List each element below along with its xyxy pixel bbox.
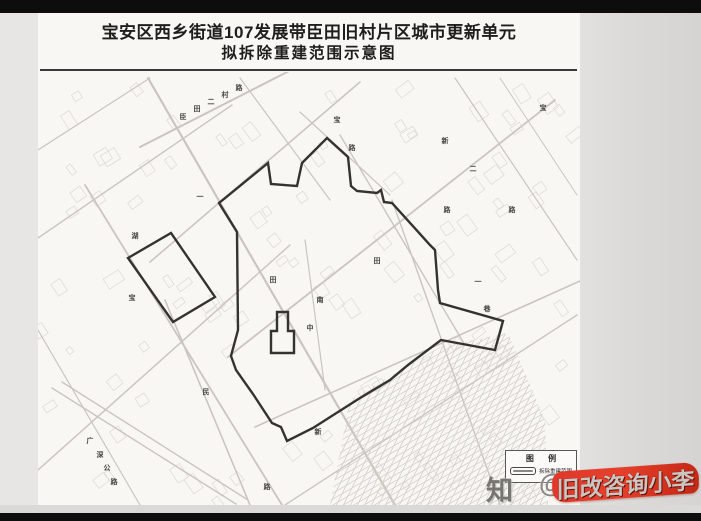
street-label: 村 bbox=[222, 90, 229, 99]
street-label: 公 bbox=[104, 464, 111, 472]
street-label: 田 bbox=[374, 257, 381, 265]
street-label: 巷 bbox=[483, 304, 492, 313]
street-label: 路 bbox=[349, 143, 357, 152]
street-label: 路 bbox=[444, 205, 452, 214]
street-label: 宝 bbox=[540, 103, 547, 112]
street-label: 路 bbox=[509, 205, 517, 214]
street-label: 路 bbox=[264, 482, 272, 491]
map-paper bbox=[38, 72, 580, 505]
title-divider bbox=[40, 69, 577, 71]
map-title: 宝安区西乡街道107发展带臣田旧村片区城市更新单元 拟拆除重建范围示意图 bbox=[38, 22, 580, 64]
street-label: 一 bbox=[197, 194, 204, 201]
street-label: 路 bbox=[236, 83, 244, 92]
map-title-line2: 拟拆除重建范围示意图 bbox=[38, 44, 580, 64]
street-label: 南 bbox=[317, 295, 324, 304]
street-label: 湖 bbox=[132, 231, 139, 240]
screenshot-root: 宝安区西乡街道107发展带臣田旧村片区城市更新单元 拟拆除重建范围示意图 臣田二… bbox=[0, 0, 701, 521]
photo-margin-left bbox=[0, 13, 38, 513]
street-label: 二 bbox=[470, 165, 477, 173]
street-label: 民 bbox=[203, 388, 210, 396]
street-label: 二 bbox=[208, 98, 215, 106]
street-label: 臣 bbox=[180, 113, 187, 121]
photo-margin-right bbox=[580, 13, 701, 513]
street-label: 新 bbox=[315, 427, 322, 436]
street-label: 中 bbox=[307, 323, 314, 332]
street-label: 宝 bbox=[334, 115, 341, 124]
letterbox-top-bar bbox=[0, 0, 701, 13]
street-label: 一 bbox=[475, 279, 482, 286]
street-label: 田 bbox=[194, 105, 201, 113]
map-title-line1: 宝安区西乡街道107发展带臣田旧村片区城市更新单元 bbox=[38, 22, 580, 44]
street-label: 田 bbox=[270, 276, 277, 284]
street-label: 深 bbox=[97, 450, 104, 459]
letterbox-bottom-bar bbox=[0, 513, 701, 521]
planning-map: 臣田二村路一宝路宝新二路路田一巷田南中湖宝民新路广深公路 bbox=[38, 72, 580, 505]
street-label: 路 bbox=[111, 477, 119, 486]
legend-title: 图 例 bbox=[506, 453, 576, 464]
street-label: 新 bbox=[442, 136, 449, 145]
photo-margin-bottom bbox=[0, 505, 701, 513]
street-label: 宝 bbox=[129, 293, 136, 302]
map-sheet: 宝安区西乡街道107发展带臣田旧村片区城市更新单元 拟拆除重建范围示意图 臣田二… bbox=[38, 13, 580, 505]
street-label: 广 bbox=[87, 436, 94, 445]
